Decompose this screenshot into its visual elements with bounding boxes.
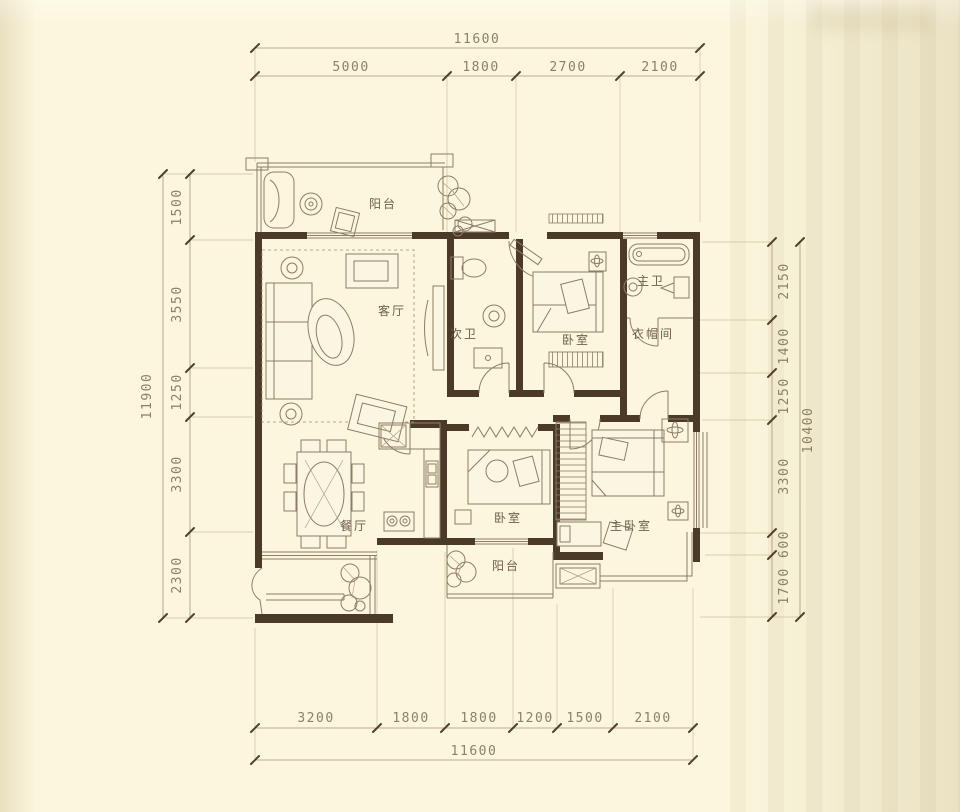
dim-right-total: 10400 xyxy=(801,407,816,454)
bedroom-top-door xyxy=(544,363,574,393)
dim-left-seg-3: 3300 xyxy=(170,455,185,492)
dimension-chain-left: 11900 1500 3550 1250 3300 2300 xyxy=(140,170,253,622)
balcony-top-stool xyxy=(330,207,359,236)
room-label-master-bath: 主卫 xyxy=(637,274,665,288)
dim-right-seg-5: 1700 xyxy=(777,567,792,604)
master-ac-unit xyxy=(662,419,688,442)
dimension-chain-top: 11600 5000 1800 2700 2100 xyxy=(251,32,704,232)
dim-top-seg-0: 5000 xyxy=(332,60,369,75)
bedroom-bottom-bed xyxy=(468,450,550,504)
dim-top-seg-3: 2100 xyxy=(641,60,678,75)
dim-top-total: 11600 xyxy=(454,32,501,47)
dim-bottom-total: 11600 xyxy=(451,744,498,759)
room-label-bedroom-bottom: 卧室 xyxy=(494,510,522,525)
dim-bottom-seg-2: 1800 xyxy=(460,711,497,726)
bedroom-top-wardrobe xyxy=(549,352,603,367)
balcony-top-chaise xyxy=(264,172,294,228)
dim-top-seg-1: 1800 xyxy=(462,60,499,75)
dim-right-seg-4: 600 xyxy=(777,530,792,558)
balcony-top-table xyxy=(300,193,322,215)
room-label-balcony-bottom: 阳台 xyxy=(492,558,520,573)
cloakroom-door xyxy=(640,391,668,419)
dim-bottom-seg-3: 1200 xyxy=(516,711,553,726)
balcony-bottom-plant xyxy=(447,551,476,587)
room-label-bedroom-top: 卧室 xyxy=(562,332,590,347)
dim-left-seg-0: 1500 xyxy=(170,188,185,225)
room-label-master-bedroom: 主卧室 xyxy=(610,518,652,533)
bedroom-top-bed xyxy=(533,272,603,332)
dim-bottom-seg-5: 2100 xyxy=(634,711,671,726)
toilet xyxy=(451,257,486,279)
bedroom-bottom-accordion-door xyxy=(472,427,538,437)
bay-left-plants xyxy=(341,564,371,611)
second-bath-sink xyxy=(483,305,505,327)
dim-bottom-seg-1: 1800 xyxy=(392,711,429,726)
room-label-second-bath: 次卫 xyxy=(450,327,478,341)
dim-right-seg-1: 1400 xyxy=(777,327,792,364)
living-room-armchair-top xyxy=(346,254,398,288)
dim-left-seg-4: 2300 xyxy=(170,556,185,593)
room-label-living-room: 客厅 xyxy=(378,303,406,318)
floor-plan-drawing: 11600 5000 1800 2700 2100 3200 1800 1800… xyxy=(0,0,960,812)
dim-right-seg-0: 2150 xyxy=(777,262,792,299)
master-bed xyxy=(592,430,664,496)
living-room-sofa xyxy=(266,257,312,425)
dim-right-seg-3: 3300 xyxy=(777,457,792,494)
living-room-armchair-bottom xyxy=(348,394,407,442)
master-bay-window-seat xyxy=(556,564,600,588)
master-wardrobe xyxy=(556,422,586,520)
stove xyxy=(384,512,414,531)
bedroom-top-nightstand xyxy=(589,252,606,271)
bedroom-bottom-nightstand xyxy=(455,510,471,524)
dim-left-seg-2: 1250 xyxy=(170,373,185,410)
master-bath-vanity xyxy=(661,277,689,298)
room-label-dining-room: 餐厅 xyxy=(340,518,368,533)
dim-left-seg-1: 3550 xyxy=(170,285,185,322)
dimension-chain-bottom: 3200 1800 1800 1200 1500 2100 11600 xyxy=(251,548,697,764)
room-label-cloakroom: 衣帽间 xyxy=(632,326,674,341)
dim-left-total: 11900 xyxy=(140,373,155,420)
dim-top-seg-2: 2700 xyxy=(549,60,586,75)
tv-cabinet xyxy=(425,286,445,370)
dim-right-seg-2: 1250 xyxy=(777,377,792,414)
dim-bottom-seg-4: 1500 xyxy=(566,711,603,726)
master-nightstand xyxy=(668,502,688,520)
bathtub xyxy=(629,244,689,265)
dimension-chain-right: 2150 1400 1250 3300 600 1700 10400 xyxy=(700,238,816,621)
room-label-balcony-top: 阳台 xyxy=(369,196,397,211)
dim-bottom-seg-0: 3200 xyxy=(297,711,334,726)
